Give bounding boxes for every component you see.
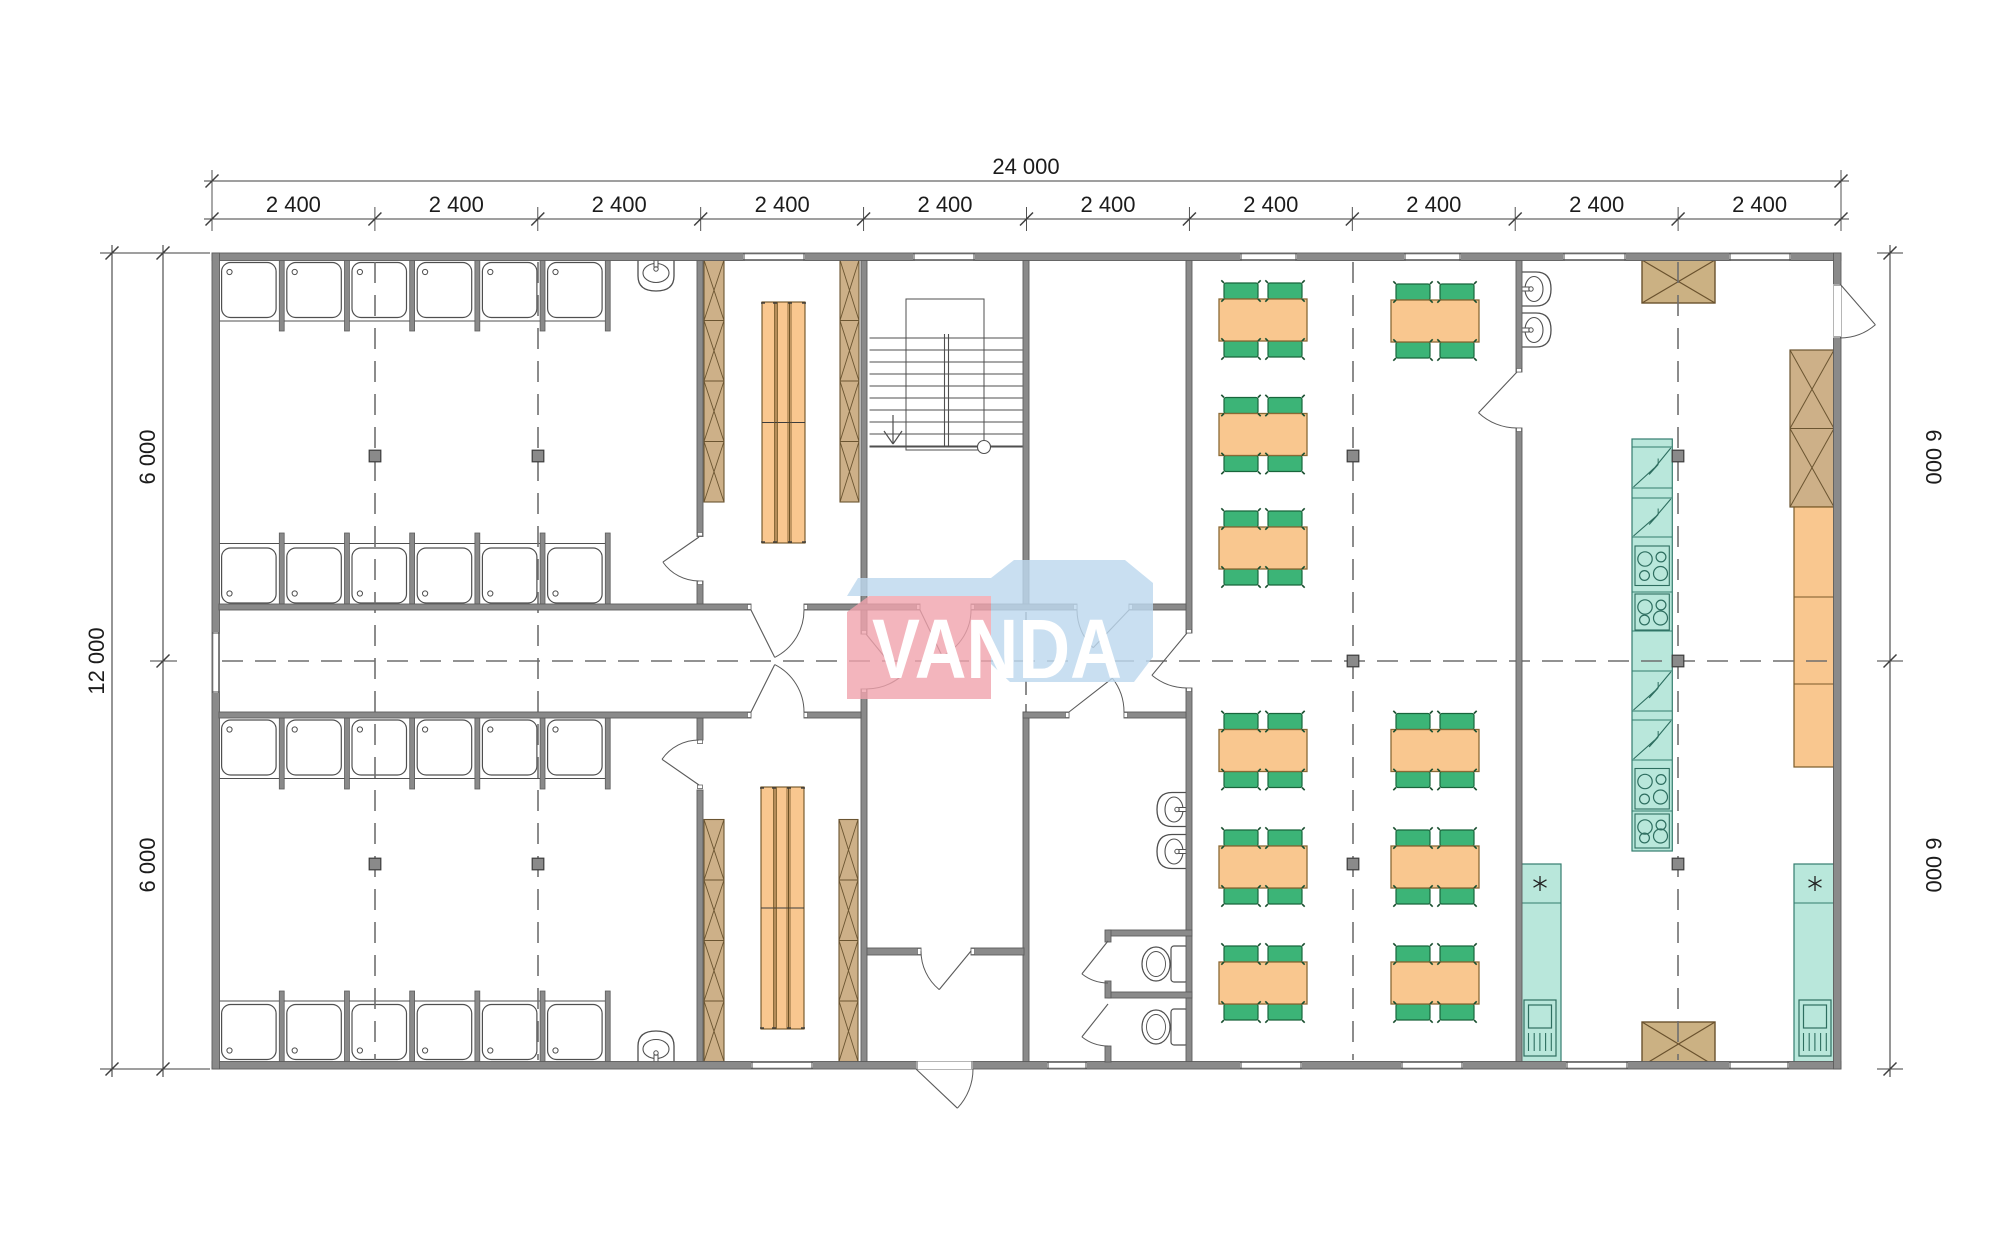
svg-text:2 400: 2 400 bbox=[1080, 192, 1135, 217]
svg-text:2 400: 2 400 bbox=[1732, 192, 1787, 217]
svg-text:24 000: 24 000 bbox=[992, 154, 1059, 179]
svg-text:2 400: 2 400 bbox=[1406, 192, 1461, 217]
svg-text:2 400: 2 400 bbox=[1243, 192, 1298, 217]
svg-text:2 400: 2 400 bbox=[429, 192, 484, 217]
svg-text:6 000: 6 000 bbox=[1921, 837, 1946, 892]
svg-text:6 000: 6 000 bbox=[1921, 429, 1946, 484]
svg-text:6 000: 6 000 bbox=[135, 837, 160, 892]
svg-text:2 400: 2 400 bbox=[755, 192, 810, 217]
svg-text:6 000: 6 000 bbox=[135, 429, 160, 484]
svg-text:VANDA: VANDA bbox=[872, 602, 1122, 696]
svg-text:2 400: 2 400 bbox=[1569, 192, 1624, 217]
svg-text:2 400: 2 400 bbox=[266, 192, 321, 217]
svg-text:2 400: 2 400 bbox=[917, 192, 972, 217]
svg-text:2 400: 2 400 bbox=[592, 192, 647, 217]
svg-text:12 000: 12 000 bbox=[84, 627, 109, 694]
